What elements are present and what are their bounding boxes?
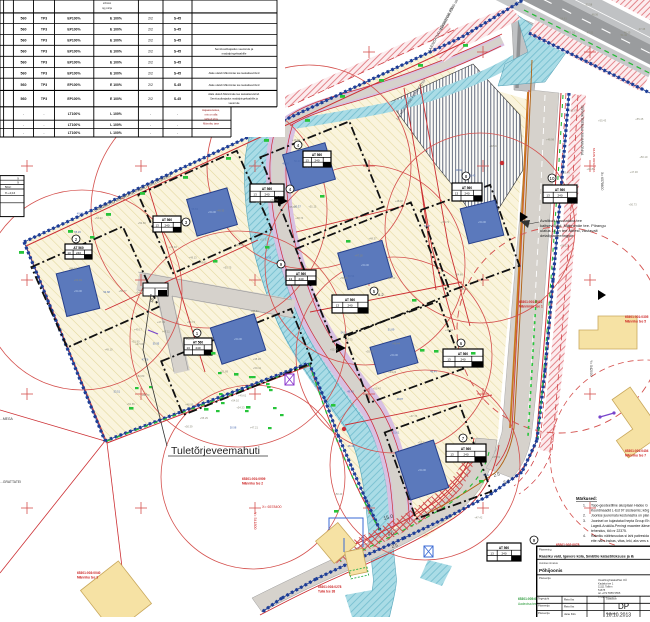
svg-text:+51.67: +51.67 bbox=[260, 237, 269, 241]
svg-text:Rein Ilm: Rein Ilm bbox=[564, 605, 575, 609]
svg-text:Hajaasutustes,: Hajaasutustes, bbox=[202, 108, 220, 112]
svg-text:+50.47: +50.47 bbox=[373, 386, 382, 390]
svg-text:Planeering: Planeering bbox=[539, 548, 552, 552]
svg-text:240: 240 bbox=[164, 223, 169, 227]
svg-text:Märkused:: Märkused: bbox=[576, 496, 597, 501]
svg-text:+52.43: +52.43 bbox=[95, 216, 104, 220]
svg-text:240: 240 bbox=[264, 193, 269, 197]
svg-text:+54.10: +54.10 bbox=[231, 398, 240, 402]
svg-text:560: 560 bbox=[21, 28, 27, 32]
svg-text:L 100%: L 100% bbox=[110, 112, 122, 116]
svg-text:E 100%: E 100% bbox=[110, 60, 122, 64]
svg-text:+48.60: +48.60 bbox=[395, 199, 404, 203]
svg-text:Männiku tee 2: Männiku tee 2 bbox=[242, 482, 263, 486]
svg-text:AT 560: AT 560 bbox=[458, 352, 468, 356]
svg-text:49.80: 49.80 bbox=[77, 212, 84, 216]
svg-text:X= 6578600: X= 6578600 bbox=[600, 172, 604, 190]
svg-text:-: - bbox=[177, 123, 178, 127]
svg-text:47.51: 47.51 bbox=[587, 31, 594, 35]
svg-text:13: 13 bbox=[187, 346, 191, 350]
svg-text:+54.93: +54.93 bbox=[74, 278, 83, 282]
svg-text:-: - bbox=[23, 131, 24, 135]
svg-text:+51.90: +51.90 bbox=[131, 339, 140, 343]
svg-text:AT 560: AT 560 bbox=[462, 186, 472, 190]
svg-text:+49.61: +49.61 bbox=[238, 394, 247, 398]
svg-text:EP100%: EP100% bbox=[67, 49, 80, 53]
svg-text:+50.75: +50.75 bbox=[345, 337, 354, 341]
svg-text:51.42: 51.42 bbox=[621, 33, 628, 37]
svg-text:Servituudivajadus veetorule ja: Servituudivajadus veetorule ja bbox=[215, 47, 254, 51]
svg-text:53.53: 53.53 bbox=[348, 274, 355, 278]
svg-text:+50.39: +50.39 bbox=[184, 425, 193, 429]
svg-text:560: 560 bbox=[21, 83, 27, 87]
svg-text:49.65: 49.65 bbox=[282, 162, 289, 166]
svg-text:S-45: S-45 bbox=[174, 71, 181, 75]
svg-text:3.: 3. bbox=[583, 519, 586, 523]
svg-text:240: 240 bbox=[463, 453, 468, 457]
svg-text:240: 240 bbox=[347, 304, 352, 308]
svg-text:+54.33: +54.33 bbox=[135, 291, 144, 295]
svg-text:+47.49: +47.49 bbox=[157, 320, 166, 324]
svg-text:-: - bbox=[43, 112, 44, 116]
svg-text:52.68: 52.68 bbox=[103, 290, 110, 294]
svg-text:13: 13 bbox=[156, 223, 160, 227]
svg-text:13: 13 bbox=[490, 552, 494, 556]
svg-text:TP3: TP3 bbox=[41, 38, 47, 42]
svg-text:EP100%: EP100% bbox=[67, 17, 80, 21]
svg-text:S-45: S-45 bbox=[174, 38, 181, 42]
svg-text:560: 560 bbox=[21, 60, 27, 64]
svg-text:+54.00: +54.00 bbox=[478, 220, 487, 224]
svg-text:-: - bbox=[177, 112, 178, 116]
svg-text:AT 560: AT 560 bbox=[296, 272, 306, 276]
svg-text:TERVIKTEEMAA JUUANKONNA: TERVIKTEEMAA JUUANKONNA bbox=[580, 105, 584, 156]
svg-text:+54.94: +54.94 bbox=[69, 266, 78, 270]
svg-text:52.58: 52.58 bbox=[586, 3, 593, 7]
svg-text:48.87: 48.87 bbox=[397, 397, 404, 401]
svg-text:Planeerija: Planeerija bbox=[538, 611, 550, 615]
svg-text:sihtotst: sihtotst bbox=[103, 1, 111, 5]
svg-text:53.51: 53.51 bbox=[114, 390, 121, 394]
svg-text:Topo-geodeetiline alusplaan H: Topo-geodeetiline alusplaan Hadee G bbox=[591, 504, 648, 508]
svg-text:65301:001:0909: 65301:001:0909 bbox=[242, 477, 266, 481]
svg-text:50.98: 50.98 bbox=[230, 425, 237, 429]
svg-text:240: 240 bbox=[557, 194, 562, 198]
svg-text:% +0,16: % +0,16 bbox=[5, 191, 16, 195]
svg-text:+48.98: +48.98 bbox=[546, 137, 555, 141]
svg-text:-: - bbox=[23, 112, 24, 116]
svg-text:+48.81: +48.81 bbox=[251, 309, 260, 313]
svg-text:+54.00: +54.00 bbox=[74, 289, 83, 293]
svg-text:MUUN ORSOSTA: MUUN ORSOSTA bbox=[592, 148, 596, 172]
svg-text:LT100%: LT100% bbox=[68, 131, 81, 135]
svg-text:+48.95: +48.95 bbox=[185, 403, 194, 407]
svg-text:54.11: 54.11 bbox=[341, 330, 348, 334]
svg-text:240: 240 bbox=[76, 251, 81, 255]
svg-text:ette nähs insbas, vitas, leki,: ette nähs insbas, vitas, leki, aks vms s bbox=[591, 539, 649, 543]
svg-text:Joonise nimetus: Joonise nimetus bbox=[539, 561, 558, 565]
svg-text:üg pürija: üg pürija bbox=[102, 6, 113, 10]
svg-text:+52.80: +52.80 bbox=[136, 374, 145, 378]
svg-text:55.63: 55.63 bbox=[191, 207, 198, 211]
svg-text:TP3: TP3 bbox=[41, 97, 47, 101]
svg-text:13: 13 bbox=[253, 193, 257, 197]
svg-text:TP3: TP3 bbox=[41, 49, 47, 53]
svg-text:AT 560: AT 560 bbox=[555, 188, 565, 192]
svg-text:13: 13 bbox=[336, 304, 340, 308]
svg-text:+47.11: +47.11 bbox=[162, 329, 170, 333]
svg-text:-: - bbox=[150, 112, 151, 116]
svg-text:2.: 2. bbox=[583, 514, 586, 518]
svg-text:EP100%: EP100% bbox=[67, 38, 80, 42]
svg-text:240: 240 bbox=[460, 358, 465, 362]
svg-text:51.12: 51.12 bbox=[483, 473, 490, 477]
svg-text:560: 560 bbox=[21, 71, 27, 75]
svg-text:65301:001:0012: 65301:001:0012 bbox=[519, 300, 543, 304]
svg-text:+54.00: +54.00 bbox=[361, 263, 370, 267]
svg-text:-: - bbox=[150, 131, 151, 135]
svg-text:tehendus, töö nr 22375.: tehendus, töö nr 22375. bbox=[591, 529, 627, 533]
svg-text:DP: DP bbox=[618, 602, 629, 611]
svg-text:+55.63: +55.63 bbox=[365, 349, 374, 353]
svg-text:55.95: 55.95 bbox=[153, 342, 160, 346]
svg-text:EP100%: EP100% bbox=[67, 97, 80, 101]
svg-text:Tuila tee 38: Tuila tee 38 bbox=[318, 590, 335, 594]
svg-text:+54.00: +54.00 bbox=[234, 337, 243, 341]
svg-text:TP3: TP3 bbox=[41, 71, 47, 75]
svg-text:+49.13: +49.13 bbox=[189, 256, 198, 260]
svg-text:+47.21: +47.21 bbox=[250, 426, 259, 430]
svg-text:55.43: 55.43 bbox=[469, 173, 476, 177]
svg-text:Planeerija: Planeerija bbox=[539, 576, 551, 580]
svg-text:S-45: S-45 bbox=[174, 49, 181, 53]
svg-text:+55.45: +55.45 bbox=[635, 117, 644, 121]
svg-text:+54.00: +54.00 bbox=[418, 468, 427, 472]
svg-text:+47.30: +47.30 bbox=[630, 170, 639, 174]
svg-text:+54.33: +54.33 bbox=[236, 406, 245, 410]
svg-text:+55.75: +55.75 bbox=[223, 265, 232, 269]
svg-text:50.67: 50.67 bbox=[424, 224, 431, 228]
svg-text:+48.70: +48.70 bbox=[141, 393, 150, 397]
svg-text:S-45: S-45 bbox=[174, 83, 181, 87]
svg-text:+50.73: +50.73 bbox=[629, 203, 638, 207]
svg-text:+52.50: +52.50 bbox=[270, 198, 279, 202]
svg-text:50.23: 50.23 bbox=[294, 159, 301, 163]
svg-text:AT 560: AT 560 bbox=[193, 340, 203, 344]
svg-text:+55.46: +55.46 bbox=[562, 170, 571, 174]
svg-text:+48.30: +48.30 bbox=[216, 209, 225, 213]
svg-text:13: 13 bbox=[450, 453, 454, 457]
svg-text:EP100%: EP100% bbox=[67, 83, 80, 87]
svg-text:EP100%: EP100% bbox=[67, 71, 80, 75]
svg-text:Rein Ilm: Rein Ilm bbox=[564, 598, 575, 602]
svg-text:X= 6578400: X= 6578400 bbox=[262, 505, 282, 509]
svg-text:-: - bbox=[177, 131, 178, 135]
svg-text:E 100%: E 100% bbox=[110, 71, 122, 75]
svg-text:TP3: TP3 bbox=[41, 28, 47, 32]
svg-text:4.: 4. bbox=[583, 534, 586, 538]
svg-text:Alale ulatub Männimäe tee tee: Alale ulatub Männimäe tee teekaitsevöönd… bbox=[208, 92, 260, 96]
svg-text:240: 240 bbox=[464, 192, 469, 196]
svg-text:-: - bbox=[43, 123, 44, 127]
svg-text:E 100%: E 100% bbox=[110, 28, 122, 32]
svg-text:Männiku tase: Männiku tase bbox=[203, 122, 219, 126]
svg-text:2/2: 2/2 bbox=[148, 49, 153, 53]
svg-text:2/2: 2/2 bbox=[148, 97, 153, 101]
svg-text:+51.65: +51.65 bbox=[127, 402, 136, 406]
svg-text:Y= 541800: Y= 541800 bbox=[253, 512, 257, 530]
svg-text:50m²: 50m² bbox=[5, 185, 11, 189]
svg-text:Männiku tee 5: Männiku tee 5 bbox=[625, 320, 646, 324]
svg-text:Männiku tee 3: Männiku tee 3 bbox=[77, 576, 98, 580]
svg-text:560: 560 bbox=[21, 17, 27, 21]
svg-text:AT 560: AT 560 bbox=[162, 218, 172, 222]
svg-text:+50.41: +50.41 bbox=[253, 366, 262, 370]
svg-text:13: 13 bbox=[447, 358, 451, 362]
svg-text:EP100%: EP100% bbox=[67, 60, 80, 64]
svg-text:Alale ulatub Männimäe tee tee: Alale ulatub Männimäe tee teekaitsevöönd bbox=[209, 83, 260, 87]
svg-text:240: 240 bbox=[501, 552, 506, 556]
svg-text:L 100%: L 100% bbox=[110, 131, 122, 135]
svg-text:240: 240 bbox=[195, 346, 200, 350]
svg-text:S-45: S-45 bbox=[174, 17, 181, 21]
svg-text:Servituudivajadus madalpingek: Servituudivajadus madalpingekaablile ja bbox=[210, 97, 258, 101]
svg-text:240: 240 bbox=[298, 277, 303, 281]
svg-text:+48.95: +48.95 bbox=[460, 287, 469, 291]
svg-text:nähtud töös: nähtud töös bbox=[204, 117, 219, 121]
svg-text:13: 13 bbox=[289, 277, 293, 281]
svg-text:13: 13 bbox=[455, 192, 459, 196]
svg-text:AT 560: AT 560 bbox=[262, 187, 272, 191]
svg-text:1.: 1. bbox=[583, 504, 586, 508]
svg-text:+55.87: +55.87 bbox=[288, 205, 297, 209]
svg-text:49.95: 49.95 bbox=[265, 255, 272, 259]
svg-text:detailplaneeringule: detailplaneeringule bbox=[540, 233, 574, 238]
svg-text:AT 560: AT 560 bbox=[499, 546, 509, 550]
svg-text:51.61: 51.61 bbox=[393, 430, 400, 434]
svg-text:Jane Kirs: Jane Kirs bbox=[564, 612, 576, 616]
svg-text:L 100%: L 100% bbox=[110, 123, 122, 127]
svg-text:560: 560 bbox=[21, 97, 27, 101]
svg-text:+54.74: +54.74 bbox=[441, 220, 450, 224]
svg-text:Y= 542000: Y= 542000 bbox=[589, 360, 593, 377]
svg-text:+48.28: +48.28 bbox=[253, 357, 262, 361]
svg-text:+49.10: +49.10 bbox=[104, 348, 113, 352]
svg-text:49.92: 49.92 bbox=[455, 168, 462, 172]
svg-text:+49.32: +49.32 bbox=[169, 245, 178, 249]
svg-text:-: - bbox=[150, 123, 151, 127]
svg-text:Raasiku vald, Igavere küla, Sm: Raasiku vald, Igavere küla, Smältile kat… bbox=[539, 555, 634, 559]
svg-text:+55.29: +55.29 bbox=[200, 416, 209, 420]
svg-text:+48.74: +48.74 bbox=[295, 216, 304, 220]
svg-text:+48.37: +48.37 bbox=[369, 237, 378, 241]
svg-text:+48.24: +48.24 bbox=[489, 144, 498, 148]
svg-text:+55.67: +55.67 bbox=[569, 108, 578, 112]
svg-text:51.89: 51.89 bbox=[388, 328, 395, 332]
svg-text:AT 560: AT 560 bbox=[312, 153, 322, 157]
svg-text:Joonisel on kujastatud hepta G: Joonisel on kujastatud hepta Group Eh bbox=[591, 519, 650, 523]
svg-text:+48.60: +48.60 bbox=[292, 138, 301, 142]
svg-text:49.44: 49.44 bbox=[430, 370, 437, 374]
svg-text:+49.64: +49.64 bbox=[445, 328, 454, 332]
svg-text:+53.69: +53.69 bbox=[138, 221, 147, 225]
svg-text:+49.65: +49.65 bbox=[199, 260, 208, 264]
svg-text:Joonise juurematu kestunastra: Joonise juurematu kestunastra on plan bbox=[591, 514, 649, 518]
svg-text:560: 560 bbox=[21, 49, 27, 53]
svg-text:2/2: 2/2 bbox=[148, 71, 153, 75]
svg-text:Põhijoonis: Põhijoonis bbox=[539, 568, 563, 573]
svg-text:Männimäe tee 1: Männimäe tee 1 bbox=[519, 305, 543, 309]
svg-text:Planeerija: Planeerija bbox=[538, 604, 550, 608]
svg-text:Alale ulatub Männimäe tee tee: Alale ulatub Männimäe tee teekaitsevöönd bbox=[209, 71, 260, 75]
svg-text:48.43: 48.43 bbox=[348, 444, 355, 448]
svg-text:2/2: 2/2 bbox=[148, 83, 153, 87]
svg-text:2/2: 2/2 bbox=[148, 38, 153, 42]
svg-text:+55.83: +55.83 bbox=[492, 455, 501, 459]
svg-text:+54.00: +54.00 bbox=[390, 353, 399, 357]
svg-text:10.10.2013: 10.10.2013 bbox=[606, 613, 631, 618]
svg-text:65301:003:0040: 65301:003:0040 bbox=[77, 571, 101, 575]
svg-text:TP3: TP3 bbox=[41, 83, 47, 87]
svg-text:+52.21: +52.21 bbox=[418, 441, 427, 445]
svg-text:Männiku tee 7: Männiku tee 7 bbox=[625, 454, 646, 458]
svg-text:E 100%: E 100% bbox=[110, 49, 122, 53]
svg-text:240: 240 bbox=[314, 158, 319, 162]
svg-text:E 100%: E 100% bbox=[110, 38, 122, 42]
svg-text:+50.49: +50.49 bbox=[334, 492, 343, 496]
svg-text:+53.74: +53.74 bbox=[187, 320, 196, 324]
svg-text:+49.69: +49.69 bbox=[256, 200, 265, 204]
svg-text:+50.45: +50.45 bbox=[235, 243, 244, 247]
svg-text:+55.89: +55.89 bbox=[340, 276, 349, 280]
svg-text:13: 13 bbox=[306, 158, 310, 162]
svg-text:13: 13 bbox=[67, 251, 71, 255]
svg-text:48.56: 48.56 bbox=[592, 13, 599, 17]
svg-text:veetorule: veetorule bbox=[228, 101, 240, 105]
svg-text:+54.23: +54.23 bbox=[388, 370, 397, 374]
svg-text:2/2: 2/2 bbox=[148, 17, 153, 21]
svg-text:-: - bbox=[23, 123, 24, 127]
svg-text:+48.81: +48.81 bbox=[186, 337, 195, 341]
svg-text:+51.15: +51.15 bbox=[308, 204, 317, 208]
svg-text:Koordinaadid L-Est 97 süsteemi: Koordinaadid L-Est 97 süsteemis; kõrg bbox=[591, 509, 649, 513]
svg-text:Tegevjuht: Tegevjuht bbox=[538, 597, 549, 601]
svg-text:Raimiku näitrisruudas si lahi: Raimiku näitrisruudas si lahi patiresida bbox=[591, 534, 649, 538]
svg-text:AT 560: AT 560 bbox=[461, 447, 471, 451]
svg-text:E 100%: E 100% bbox=[110, 17, 122, 21]
svg-text:2/2: 2/2 bbox=[148, 60, 153, 64]
svg-text:Staadium: Staadium bbox=[606, 597, 617, 601]
svg-text:+47.74: +47.74 bbox=[409, 414, 418, 418]
svg-text:49.43: 49.43 bbox=[347, 390, 354, 394]
svg-text:+49.17: +49.17 bbox=[134, 328, 143, 332]
svg-text:S-45: S-45 bbox=[174, 97, 181, 101]
svg-text:...MEGA: ...MEGA bbox=[0, 417, 14, 421]
svg-text:6.2: 6.2 bbox=[378, 292, 384, 297]
svg-text:47.45: 47.45 bbox=[639, 27, 646, 31]
svg-text:-: - bbox=[43, 131, 44, 135]
svg-text:AT 560: AT 560 bbox=[73, 246, 83, 250]
svg-text:E 100%: E 100% bbox=[110, 97, 122, 101]
svg-text:13: 13 bbox=[546, 194, 550, 198]
svg-text:55.26: 55.26 bbox=[74, 230, 81, 234]
svg-text:LT100%: LT100% bbox=[68, 112, 81, 116]
svg-text:51.91: 51.91 bbox=[569, 30, 576, 34]
svg-text:10: 10 bbox=[549, 176, 555, 181]
svg-text:EP100%: EP100% bbox=[67, 28, 80, 32]
svg-text:+50.19: +50.19 bbox=[639, 155, 648, 159]
svg-text:65301:005:60: 65301:005:60 bbox=[518, 597, 538, 601]
svg-text:+55.40: +55.40 bbox=[330, 347, 339, 351]
svg-text:+49.44: +49.44 bbox=[392, 342, 401, 346]
svg-text:+55.43: +55.43 bbox=[598, 118, 607, 122]
svg-text:madalpingekaablile: madalpingekaablile bbox=[222, 52, 247, 56]
svg-text:65301:001:0404: 65301:001:0404 bbox=[625, 449, 649, 453]
svg-text:+55.77: +55.77 bbox=[119, 289, 128, 293]
svg-text:2/2: 2/2 bbox=[148, 28, 153, 32]
svg-text:65301:003:0278: 65301:003:0278 bbox=[318, 585, 342, 589]
svg-text:+54.66: +54.66 bbox=[455, 273, 464, 277]
svg-text:mis on alla: mis on alla bbox=[205, 113, 218, 117]
svg-text:AT 560: AT 560 bbox=[345, 298, 355, 302]
svg-text:E 100%: E 100% bbox=[110, 83, 122, 87]
svg-text:Lagedi-Aruküla-Peningi maantee: Lagedi-Aruküla-Peningi maantee äärse bbox=[591, 524, 650, 528]
svg-text:Tuletõrjeveemahuti: Tuletõrjeveemahuti bbox=[171, 445, 260, 457]
svg-text:+47.18: +47.18 bbox=[355, 253, 364, 257]
svg-text:+52.12: +52.12 bbox=[387, 276, 396, 280]
svg-text:LT100%: LT100% bbox=[68, 123, 81, 127]
svg-text:65301:001:0305: 65301:001:0305 bbox=[625, 315, 649, 319]
svg-text:54.61: 54.61 bbox=[560, 17, 567, 21]
svg-text:S-45: S-45 bbox=[174, 28, 181, 32]
svg-text:+54.12: +54.12 bbox=[560, 244, 569, 248]
svg-text:S-45: S-45 bbox=[174, 60, 181, 64]
svg-text:TP3: TP3 bbox=[41, 60, 47, 64]
svg-text:560: 560 bbox=[21, 38, 27, 42]
svg-text:TP3: TP3 bbox=[41, 17, 47, 21]
svg-text:+47.42: +47.42 bbox=[474, 516, 483, 520]
svg-text:...GRATTATEI: ...GRATTATEI bbox=[0, 480, 21, 484]
